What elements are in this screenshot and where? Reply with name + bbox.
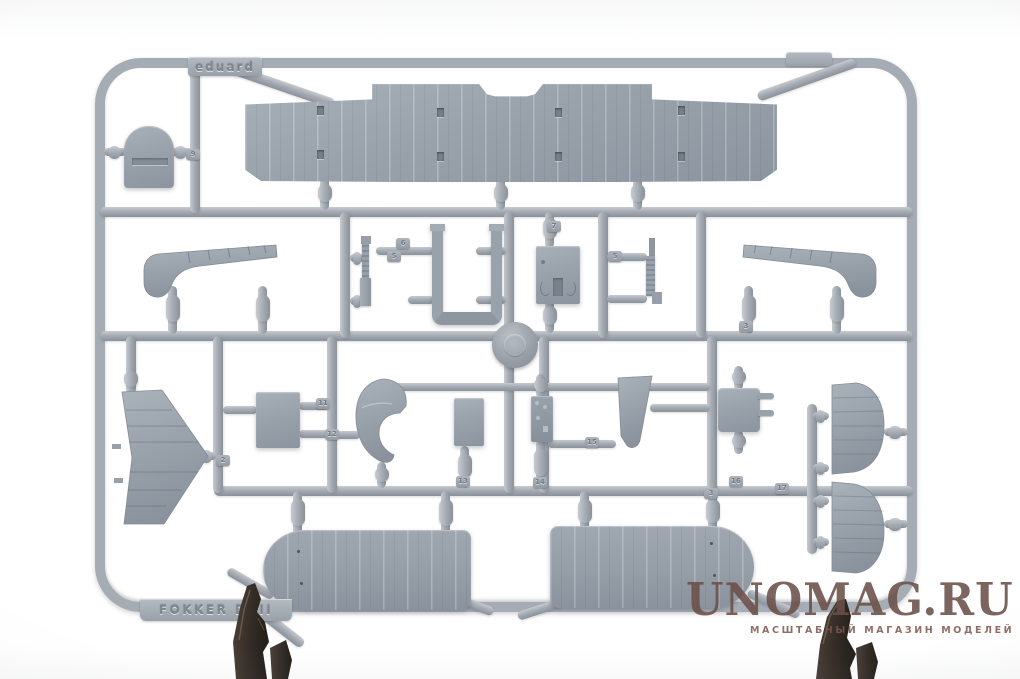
tank-hook-top: [758, 393, 774, 399]
instrument-panel-part: [531, 396, 553, 442]
gate-upper-wing-3: [633, 178, 642, 210]
tank-hook-bottom: [758, 410, 774, 416]
wing-rigging-hole: [300, 582, 303, 585]
u-frame-cap-left: [430, 224, 445, 231]
u-frame-part: [432, 228, 502, 325]
part-number-tag: 12: [325, 429, 339, 440]
runner-vertical-2: [340, 212, 350, 338]
kit-name-tab: FOKKER DVII: [140, 599, 292, 621]
machine-gun-2-butt: [652, 292, 662, 304]
gate-crescent-bottom: [377, 462, 386, 488]
radiator-slot: [132, 158, 168, 165]
part-number-tag: 7: [547, 221, 561, 232]
part-number-tag: 16: [729, 476, 743, 487]
wing-hole: [317, 106, 324, 115]
part-number-tag: 3: [704, 488, 718, 499]
runner-vertical-10: [807, 404, 817, 554]
gate-tailplane-right: [198, 452, 216, 460]
center-boss-hub: [504, 334, 526, 356]
photo-canvas: eduard FOKKER DVII 9 6 5 7 5 3 2 11 12 1…: [0, 0, 1020, 679]
wing-rigging-hole: [297, 550, 300, 553]
part-number-tag: 9: [186, 149, 200, 160]
corner-tab: [786, 52, 832, 66]
wing-hole: [555, 108, 562, 117]
gate-instrument-top: [536, 374, 545, 398]
gate-upper-wing-1: [320, 178, 329, 210]
firewall-arc-right: [565, 280, 576, 296]
fuel-tank-part: [718, 388, 760, 432]
gate-wingtip-1: [813, 412, 829, 420]
gate-wingtip-3: [813, 497, 829, 505]
machine-gun-2-barrel: [649, 238, 655, 258]
runner-uframe-left-bottom: [408, 296, 434, 304]
instrument-detail: [543, 426, 548, 432]
gate-aileron-left-1: [168, 286, 177, 334]
runner-vertical-6: [213, 336, 223, 493]
lower-wing-left-part: [263, 530, 471, 610]
runner-vertical-5: [696, 212, 706, 338]
part-number-tag: 15: [585, 437, 599, 448]
firewall-slot: [553, 278, 563, 296]
instrument-dial: [536, 416, 540, 420]
part-number-tag: 5: [387, 251, 401, 262]
gate-radiator-left: [104, 148, 126, 156]
part-number-tag: 13: [456, 476, 470, 487]
part-number-tag: 17: [775, 483, 789, 494]
part-number-tag: 5: [608, 251, 622, 262]
part-number-tag: 14: [533, 477, 547, 488]
brand-tab: eduard: [188, 57, 262, 76]
gate-tailplane-top: [126, 366, 135, 394]
brand-text: eduard: [195, 60, 255, 74]
wing-hole: [678, 106, 685, 115]
runner-vertical-9: [707, 336, 717, 493]
runner-vertical-1: [190, 66, 200, 213]
radiator-part: [124, 126, 174, 188]
runner-vertical-7: [327, 336, 337, 493]
runner-panel-left: [223, 406, 257, 414]
machine-gun-1-body: [360, 278, 371, 306]
runner-vertical-4: [598, 212, 608, 338]
part-number-tag: 11: [316, 398, 330, 409]
wing-hole: [437, 108, 444, 117]
gate-wingtip-frame-2: [884, 520, 908, 528]
runner-crescent-left: [336, 431, 360, 439]
wing-hole: [317, 150, 324, 159]
part-number-tag: 2: [216, 455, 230, 466]
runner-middle-band-top: [392, 383, 710, 391]
instrument-dial: [535, 401, 539, 405]
wing-hole: [555, 152, 562, 161]
gate-firewall-bottom: [545, 300, 554, 333]
gate-aileron-left-2: [258, 286, 267, 334]
u-frame-cap-right: [489, 224, 504, 231]
center-boss-part: [492, 322, 538, 368]
firewall-arc-left: [540, 280, 551, 296]
runner-fin-right: [650, 404, 710, 412]
gate-upper-wing-2: [496, 178, 505, 210]
runner-fin-bottom: [548, 440, 616, 448]
wing-rigging-hole: [710, 542, 713, 545]
instrument-dial: [543, 405, 547, 409]
watermark-title: UNOMAG.RU: [686, 574, 966, 627]
gate-wingtip-4: [813, 538, 829, 546]
part-number-tag: 6: [396, 238, 410, 249]
firewall-hole: [541, 260, 545, 264]
wing-hole: [437, 152, 444, 161]
gate-box-top: [734, 366, 743, 390]
rect-panel-part: [256, 392, 300, 448]
firewall-plate-part: [536, 246, 580, 304]
machine-gun-2-jacket: [646, 256, 655, 296]
kit-name-text: FOKKER DVII: [159, 603, 273, 617]
gate-box-bottom: [734, 430, 743, 454]
gate-wingtip-frame-1: [884, 428, 908, 436]
watermark-subtitle: МАСШТАБНЫЙ МАГАЗИН МОДЕЛЕЙ: [750, 625, 1014, 636]
runner-mg2-bottom: [607, 295, 647, 303]
gate-aileron-right-2: [832, 286, 841, 334]
small-panel-part: [454, 398, 484, 446]
part-number-tag: 3: [739, 321, 753, 332]
machine-gun-1-barrel: [362, 242, 369, 282]
gate-wingtip-2: [813, 464, 829, 472]
wing-hole: [678, 152, 685, 161]
